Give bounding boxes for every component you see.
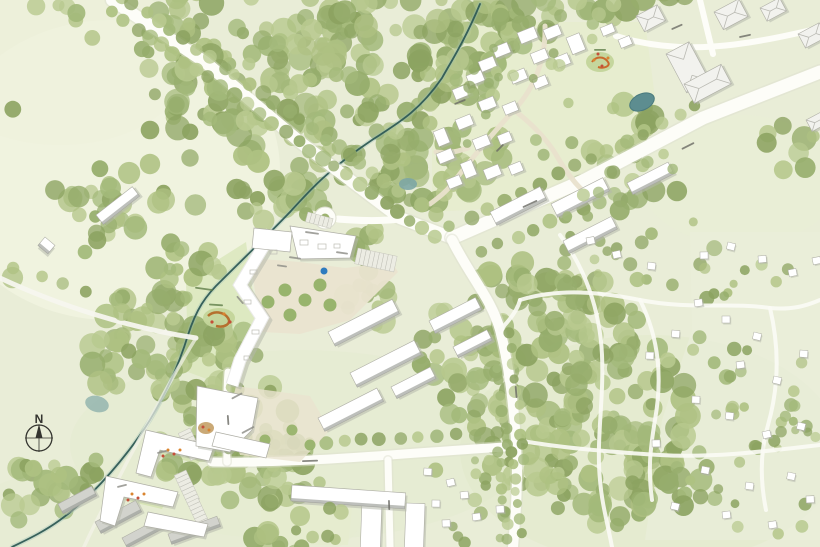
tree (293, 113, 305, 125)
tree (572, 430, 590, 448)
tree (404, 215, 415, 226)
tree (294, 135, 306, 147)
tree (291, 525, 301, 535)
tree (739, 402, 749, 412)
tree (89, 453, 104, 468)
tree (481, 110, 491, 120)
tree (607, 102, 619, 114)
tree (430, 349, 445, 364)
garden-hut (432, 500, 441, 509)
garden-hut (725, 412, 735, 422)
tree (352, 156, 366, 170)
tree (450, 73, 463, 86)
tree (587, 34, 598, 45)
tree (287, 425, 298, 436)
garden-hut (806, 496, 816, 505)
tree (465, 211, 480, 226)
tree (620, 135, 634, 149)
tree (655, 117, 668, 130)
tree (471, 456, 479, 464)
tree (140, 59, 159, 78)
tree (192, 13, 209, 30)
tree (412, 431, 423, 442)
tree (494, 73, 503, 82)
tree (414, 197, 429, 212)
tree (517, 528, 527, 538)
tree (687, 344, 699, 356)
tree (323, 502, 336, 515)
tree (365, 186, 379, 200)
tree (497, 458, 506, 467)
tree (635, 236, 649, 250)
tree (493, 375, 503, 385)
tree (118, 162, 140, 184)
tree (290, 506, 310, 526)
tree (149, 88, 161, 100)
tree (469, 429, 481, 441)
tree (563, 98, 573, 108)
tree (448, 373, 467, 392)
tree (708, 356, 721, 369)
tree (796, 520, 809, 533)
tree (156, 462, 176, 482)
tree (106, 6, 118, 18)
tree (517, 438, 528, 449)
landscape-master-plan: N (0, 0, 820, 547)
tree (628, 311, 646, 329)
garden-hut (423, 468, 433, 477)
map-label-illegible (388, 500, 390, 510)
tree (467, 88, 478, 99)
tree (264, 170, 285, 191)
tree (253, 107, 267, 121)
tree (732, 521, 744, 533)
tree (363, 55, 384, 76)
tree (638, 129, 649, 140)
tree (92, 330, 110, 348)
tree (666, 279, 679, 292)
tree (489, 44, 498, 53)
tree (538, 149, 550, 161)
tree (423, 116, 438, 131)
tree (203, 50, 217, 64)
tree (484, 455, 495, 466)
tree (25, 460, 42, 477)
tree (88, 225, 105, 242)
tree (518, 454, 529, 465)
tree (481, 480, 491, 490)
tree (67, 4, 85, 22)
tree (390, 204, 405, 219)
tree (203, 257, 222, 276)
tree (4, 101, 21, 118)
tree (734, 457, 745, 468)
tree (528, 298, 546, 316)
tree (51, 467, 67, 483)
tree (78, 245, 93, 260)
tree (264, 116, 279, 131)
tree (328, 161, 339, 172)
tree (522, 382, 547, 407)
tree (511, 487, 520, 496)
tree (780, 411, 791, 422)
tree (380, 144, 400, 164)
tree (180, 291, 192, 303)
tree (667, 164, 678, 175)
tree (201, 70, 214, 83)
tree (284, 309, 297, 322)
tree (164, 46, 180, 62)
tree (502, 534, 513, 545)
tree (536, 425, 550, 439)
tree (658, 149, 669, 160)
tree (693, 330, 707, 344)
tree (174, 241, 190, 257)
garden-hut (700, 252, 709, 261)
tree (650, 369, 674, 393)
tree (152, 188, 175, 211)
tree (269, 35, 286, 52)
tree (600, 144, 614, 158)
tree (163, 24, 175, 36)
tree (324, 299, 337, 312)
garden-hut (647, 262, 657, 272)
tree (428, 207, 443, 222)
tree (670, 423, 696, 449)
tree (565, 136, 578, 149)
tree (795, 157, 816, 178)
tree (517, 274, 538, 295)
tree (545, 311, 565, 331)
tree (508, 459, 518, 469)
tree (551, 167, 565, 181)
garden-hut (586, 236, 597, 246)
tree (514, 513, 525, 524)
tree (671, 373, 696, 398)
tree (247, 150, 270, 173)
tree (660, 352, 676, 368)
tree (121, 344, 136, 359)
tree (610, 518, 624, 532)
tree (775, 426, 786, 437)
tree (507, 343, 517, 353)
tree (476, 246, 488, 258)
tree (530, 134, 542, 146)
garden-hut (496, 506, 506, 515)
tree (590, 255, 600, 265)
tree (496, 472, 506, 482)
tree (667, 181, 687, 201)
tree (492, 238, 503, 249)
tree (495, 284, 510, 299)
tree (339, 435, 351, 447)
tree (57, 277, 69, 289)
tree (415, 221, 429, 235)
tree (577, 189, 590, 202)
tree (395, 432, 408, 445)
garden-hut (652, 440, 661, 449)
tree (514, 413, 526, 425)
garden-hut (442, 520, 452, 529)
tree (190, 43, 202, 55)
tree (470, 393, 488, 411)
tree (609, 388, 625, 404)
tree (492, 364, 501, 373)
tree (250, 202, 263, 215)
tree (551, 440, 571, 460)
tree (354, 14, 378, 38)
tree (100, 178, 121, 199)
tree (212, 79, 228, 95)
tree (203, 112, 218, 127)
road (338, 219, 400, 221)
tree (463, 139, 472, 148)
tree (185, 194, 206, 215)
tree (257, 521, 280, 544)
tree (610, 200, 630, 220)
tree (329, 67, 344, 82)
tree (142, 46, 154, 58)
tree (693, 489, 708, 504)
garden-hut (700, 466, 711, 476)
garden-hut (745, 482, 755, 492)
tree (355, 433, 368, 446)
tree (562, 211, 572, 221)
tree (593, 187, 604, 198)
tree (740, 265, 750, 275)
tree (600, 416, 618, 434)
tree (789, 400, 801, 412)
tree (87, 371, 112, 396)
tree (124, 216, 148, 240)
tree (176, 30, 191, 45)
garden-hut (671, 330, 681, 339)
tree (240, 97, 254, 111)
tree (771, 276, 782, 287)
tree (507, 358, 519, 370)
tree (141, 7, 153, 19)
tree (731, 499, 740, 508)
tree (227, 87, 243, 103)
tree (243, 77, 257, 91)
tree (116, 14, 129, 27)
tree (563, 275, 572, 284)
tree (320, 134, 332, 146)
tree (84, 30, 100, 46)
tree (551, 501, 565, 515)
tree (430, 430, 443, 443)
tree (237, 27, 249, 39)
tree (807, 130, 820, 143)
tree (279, 284, 292, 297)
tree (453, 531, 464, 542)
pond (399, 178, 417, 190)
tree (302, 144, 316, 158)
tree (182, 124, 198, 140)
garden-hut (788, 268, 799, 278)
tree (607, 165, 621, 179)
tree (221, 491, 240, 510)
tree (183, 18, 196, 31)
tree (303, 73, 317, 87)
tree (625, 475, 640, 490)
tree (503, 327, 514, 338)
tree (565, 374, 588, 397)
tree (377, 174, 392, 189)
tree (68, 186, 90, 208)
tree (492, 447, 503, 458)
tree (279, 125, 293, 139)
tree (604, 303, 626, 325)
tree (358, 101, 379, 122)
tree (428, 230, 442, 244)
tree (469, 64, 480, 75)
tree (321, 530, 334, 543)
tree (140, 154, 160, 174)
tree (168, 96, 184, 112)
tree (509, 374, 518, 383)
tree (229, 69, 240, 80)
tree (586, 153, 597, 164)
tree (543, 214, 558, 229)
tree (393, 62, 410, 79)
tree (549, 48, 559, 58)
tree (72, 208, 87, 223)
tree (788, 385, 800, 397)
tree (92, 160, 109, 177)
tree (471, 468, 482, 479)
garden-hut (692, 396, 701, 405)
tree (202, 353, 216, 367)
tree (426, 9, 450, 33)
tree (496, 483, 507, 494)
tree (282, 172, 306, 196)
tree (484, 78, 494, 88)
tree (675, 109, 687, 121)
tree (568, 310, 587, 329)
site-plan-map: N (0, 0, 820, 547)
tree (529, 74, 538, 83)
tree (512, 231, 525, 244)
garden-hut (812, 256, 820, 266)
tree (498, 495, 507, 504)
tree (297, 37, 316, 56)
tree (492, 8, 510, 26)
tree (299, 294, 312, 307)
tree (213, 112, 238, 137)
tree (711, 410, 721, 420)
tree (724, 370, 736, 382)
tree (368, 229, 384, 245)
fountain (321, 268, 328, 275)
tree (507, 70, 519, 82)
tree (506, 446, 518, 458)
tree (602, 246, 612, 256)
tree (414, 25, 428, 39)
tree (390, 24, 402, 36)
tree (306, 531, 319, 544)
tree (141, 121, 160, 140)
garden-hut (799, 350, 809, 359)
tree (305, 440, 316, 451)
tree (582, 211, 593, 222)
tree (306, 122, 319, 135)
tree (554, 9, 567, 22)
tree (730, 280, 738, 288)
tree (36, 271, 48, 283)
tree (709, 288, 720, 299)
tree (513, 499, 522, 508)
tree (407, 44, 431, 68)
north-label: N (35, 412, 44, 426)
tree (468, 493, 482, 507)
tree (774, 117, 792, 135)
tree (340, 104, 354, 118)
tree (19, 494, 40, 515)
tree (317, 90, 337, 110)
tree (623, 257, 637, 271)
tree (372, 432, 386, 446)
tree (515, 400, 525, 410)
tree (491, 426, 504, 439)
tree (266, 95, 281, 110)
tree (594, 269, 602, 277)
tree (45, 180, 65, 200)
tree (314, 279, 327, 292)
tree (742, 345, 752, 355)
tree (334, 0, 357, 23)
tree (496, 405, 508, 417)
tree (773, 528, 784, 539)
tree (181, 149, 198, 166)
tree (557, 256, 571, 270)
tree (495, 391, 505, 401)
tree (581, 465, 599, 483)
tree (685, 475, 695, 485)
tree (727, 342, 741, 356)
garden-hut (646, 352, 656, 361)
tree (576, 397, 593, 414)
tree (450, 428, 462, 440)
tree (699, 263, 710, 274)
tree (719, 291, 729, 301)
tree (630, 272, 645, 287)
apartment-slab (404, 503, 427, 547)
tree (366, 167, 379, 180)
tree (242, 58, 255, 71)
tree (340, 168, 353, 181)
tree (166, 312, 180, 326)
tree (113, 303, 131, 321)
tree (233, 181, 250, 198)
tree (443, 221, 454, 232)
tree (189, 63, 203, 77)
tree (261, 494, 279, 512)
tree (689, 217, 698, 226)
tree (592, 7, 606, 21)
tree (141, 303, 153, 315)
tree (553, 59, 566, 72)
tree (774, 160, 793, 179)
tree (545, 472, 568, 495)
tree (80, 286, 92, 298)
tree (568, 159, 581, 172)
tree (164, 263, 176, 275)
tree (510, 473, 521, 484)
tree (502, 518, 514, 530)
tree (7, 262, 19, 274)
tree (757, 133, 777, 153)
